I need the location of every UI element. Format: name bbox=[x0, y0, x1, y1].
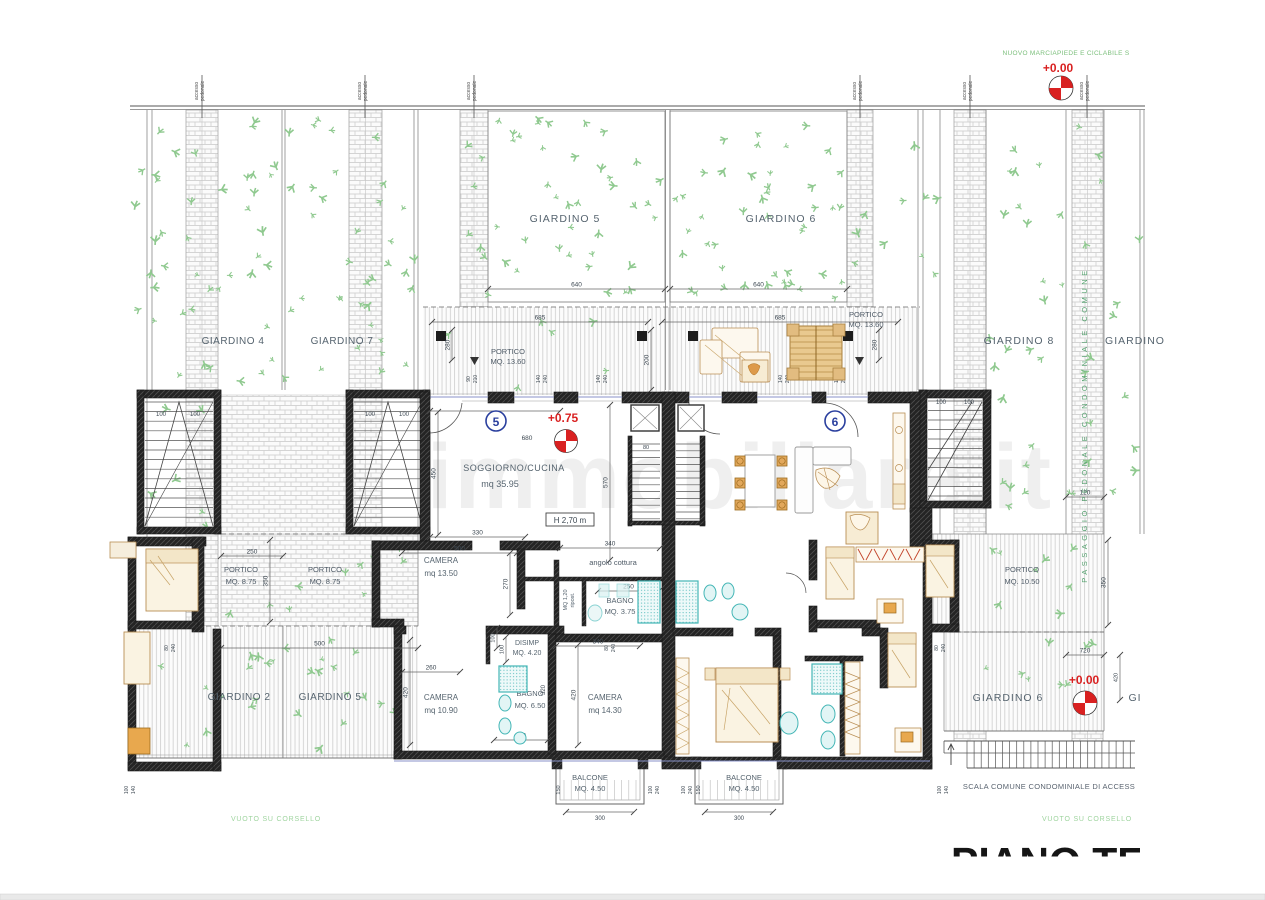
svg-text:GIARDINO 8: GIARDINO 8 bbox=[984, 335, 1055, 347]
svg-text:angolo cottura: angolo cottura bbox=[589, 558, 637, 567]
svg-text:ripost.: ripost. bbox=[570, 592, 576, 607]
svg-text:MQ. 10.50: MQ. 10.50 bbox=[1004, 577, 1039, 586]
svg-text:100: 100 bbox=[648, 786, 654, 795]
svg-text:250: 250 bbox=[247, 549, 258, 556]
svg-text:6: 6 bbox=[832, 415, 839, 429]
svg-text:GIARDINO 6: GIARDINO 6 bbox=[973, 692, 1044, 704]
svg-text:PORTICO: PORTICO bbox=[491, 347, 525, 356]
svg-text:100: 100 bbox=[681, 786, 687, 795]
svg-text:pedonale: pedonale bbox=[968, 80, 974, 101]
svg-text:MQ 1,20: MQ 1,20 bbox=[563, 589, 569, 610]
svg-text:SCALA COMUNE CONDOMINIALE D: SCALA COMUNE CONDOMINIALE DI ACCESS bbox=[963, 782, 1135, 791]
svg-text:+0.75: +0.75 bbox=[548, 411, 579, 425]
svg-text:PASSAGGIO PEDONALE CONDOMINIAL: PASSAGGIO PEDONALE CONDOMINIALE COMUNE bbox=[1080, 267, 1089, 582]
svg-text:CAMERA: CAMERA bbox=[588, 693, 623, 702]
svg-text:pedonale: pedonale bbox=[200, 80, 206, 101]
svg-text:MQ. 13.60: MQ. 13.60 bbox=[848, 320, 883, 329]
svg-text:mq 35.95: mq 35.95 bbox=[481, 479, 519, 489]
svg-text:685: 685 bbox=[535, 315, 546, 322]
svg-text:350: 350 bbox=[263, 575, 270, 586]
svg-text:mq 13.50: mq 13.50 bbox=[424, 569, 458, 578]
svg-text:240: 240 bbox=[171, 644, 177, 653]
svg-text:100: 100 bbox=[964, 400, 975, 406]
svg-text:300: 300 bbox=[734, 816, 745, 822]
svg-text:MQ. 3.75: MQ. 3.75 bbox=[605, 607, 636, 616]
svg-text:420: 420 bbox=[403, 687, 410, 698]
svg-text:685: 685 bbox=[775, 315, 786, 322]
svg-text:CAMERA: CAMERA bbox=[424, 556, 459, 565]
svg-text:150: 150 bbox=[556, 785, 562, 794]
svg-text:350: 350 bbox=[1101, 577, 1108, 588]
svg-text:PORTICO: PORTICO bbox=[849, 310, 883, 319]
svg-text:MQ. 13.60: MQ. 13.60 bbox=[490, 357, 525, 366]
svg-text:80: 80 bbox=[164, 645, 170, 651]
svg-text:280: 280 bbox=[445, 339, 452, 350]
svg-text:+0.00: +0.00 bbox=[1069, 673, 1100, 687]
svg-text:270: 270 bbox=[503, 578, 510, 589]
svg-text:100: 100 bbox=[936, 400, 947, 406]
svg-text:H 2,70 m: H 2,70 m bbox=[554, 516, 587, 525]
svg-text:280: 280 bbox=[872, 339, 879, 350]
svg-text:DISIMP: DISIMP bbox=[515, 640, 539, 647]
svg-text:pedonale: pedonale bbox=[363, 80, 369, 101]
svg-text:500: 500 bbox=[314, 641, 325, 648]
svg-text:GIARDINO 2: GIARDINO 2 bbox=[208, 692, 271, 703]
svg-text:SOGGIORNO/CUCINA: SOGGIORNO/CUCINA bbox=[463, 463, 565, 473]
svg-text:100: 100 bbox=[491, 633, 497, 642]
svg-text:GIARDINO 5: GIARDINO 5 bbox=[299, 692, 362, 703]
svg-text:330: 330 bbox=[472, 530, 483, 537]
svg-text:PORTICO: PORTICO bbox=[308, 565, 342, 574]
svg-text:GIARDINO 4: GIARDINO 4 bbox=[202, 336, 265, 347]
svg-text:90: 90 bbox=[466, 376, 472, 382]
svg-text:240: 240 bbox=[941, 644, 947, 653]
svg-text:100: 100 bbox=[500, 645, 506, 654]
svg-text:300: 300 bbox=[595, 816, 606, 822]
svg-text:pedonale: pedonale bbox=[472, 80, 478, 101]
svg-text:mq 10.90: mq 10.90 bbox=[424, 706, 458, 715]
svg-text:100: 100 bbox=[190, 412, 201, 418]
svg-text:140: 140 bbox=[944, 786, 950, 795]
svg-text:80: 80 bbox=[604, 645, 610, 651]
svg-text:100: 100 bbox=[399, 412, 410, 418]
svg-text:pedonale: pedonale bbox=[1085, 80, 1091, 101]
svg-text:140: 140 bbox=[596, 375, 602, 384]
svg-text:140: 140 bbox=[536, 375, 542, 384]
svg-text:GIARDINO: GIARDINO bbox=[1105, 335, 1165, 347]
svg-text:140: 140 bbox=[778, 375, 784, 384]
svg-text:720: 720 bbox=[1080, 648, 1091, 655]
svg-text:MQ. 6.50: MQ. 6.50 bbox=[515, 701, 546, 710]
svg-text:210: 210 bbox=[473, 375, 479, 384]
svg-text:MQ. 8.75: MQ. 8.75 bbox=[226, 577, 257, 586]
svg-text:140: 140 bbox=[131, 786, 137, 795]
svg-text:GIARDINO 6: GIARDINO 6 bbox=[746, 213, 817, 225]
svg-text:340: 340 bbox=[605, 541, 616, 548]
svg-text:240: 240 bbox=[688, 786, 694, 795]
svg-text:80: 80 bbox=[934, 645, 940, 651]
svg-text:200: 200 bbox=[644, 354, 651, 365]
svg-text:680: 680 bbox=[522, 435, 533, 442]
svg-text:150: 150 bbox=[696, 785, 702, 794]
svg-text:MQ. 8.75: MQ. 8.75 bbox=[310, 577, 341, 586]
svg-text:MQ. 4.20: MQ. 4.20 bbox=[513, 650, 542, 657]
svg-text:VUOTO SU CORSELLO: VUOTO SU CORSELLO bbox=[231, 816, 321, 823]
svg-text:NUOVO MARCIAPIEDE E CICLABI: NUOVO MARCIAPIEDE E CICLABILE S bbox=[1002, 50, 1129, 57]
svg-text:260: 260 bbox=[426, 665, 437, 672]
svg-text:100: 100 bbox=[365, 412, 376, 418]
svg-text:PORTICO: PORTICO bbox=[1005, 565, 1039, 574]
svg-text:240: 240 bbox=[655, 786, 661, 795]
svg-text:BALCONE: BALCONE bbox=[572, 773, 608, 782]
svg-text:420: 420 bbox=[1114, 673, 1120, 682]
svg-text:80: 80 bbox=[643, 445, 649, 451]
svg-text:100: 100 bbox=[937, 786, 943, 795]
svg-text:BALCONE: BALCONE bbox=[726, 773, 762, 782]
svg-text:240: 240 bbox=[603, 375, 609, 384]
svg-text:GIARDINO 5: GIARDINO 5 bbox=[530, 213, 601, 225]
svg-text:100: 100 bbox=[156, 412, 167, 418]
svg-text:500: 500 bbox=[454, 546, 465, 553]
svg-text:570: 570 bbox=[603, 477, 610, 488]
svg-text:240: 240 bbox=[611, 644, 617, 653]
svg-text:640: 640 bbox=[571, 282, 582, 289]
svg-text:320: 320 bbox=[541, 684, 547, 695]
svg-text:CAMERA: CAMERA bbox=[424, 693, 459, 702]
svg-text:MQ. 4.50: MQ. 4.50 bbox=[575, 784, 606, 793]
svg-text:100: 100 bbox=[124, 786, 130, 795]
svg-text:240: 240 bbox=[543, 375, 549, 384]
svg-text:GI: GI bbox=[1128, 692, 1141, 704]
svg-text:5: 5 bbox=[493, 415, 500, 429]
svg-text:mq 14.30: mq 14.30 bbox=[588, 706, 622, 715]
svg-text:GIARDINO 7: GIARDINO 7 bbox=[311, 336, 374, 347]
svg-text:420: 420 bbox=[571, 689, 578, 700]
svg-text:450: 450 bbox=[431, 468, 438, 479]
svg-text:MQ. 4.50: MQ. 4.50 bbox=[729, 784, 760, 793]
svg-text:+0.00: +0.00 bbox=[1043, 61, 1074, 75]
svg-text:640: 640 bbox=[753, 282, 764, 289]
svg-text:PORTICO: PORTICO bbox=[224, 565, 258, 574]
svg-text:pedonale: pedonale bbox=[858, 80, 864, 101]
svg-text:VUOTO SU CORSELLO: VUOTO SU CORSELLO bbox=[1042, 816, 1132, 823]
svg-text:340: 340 bbox=[593, 639, 604, 646]
